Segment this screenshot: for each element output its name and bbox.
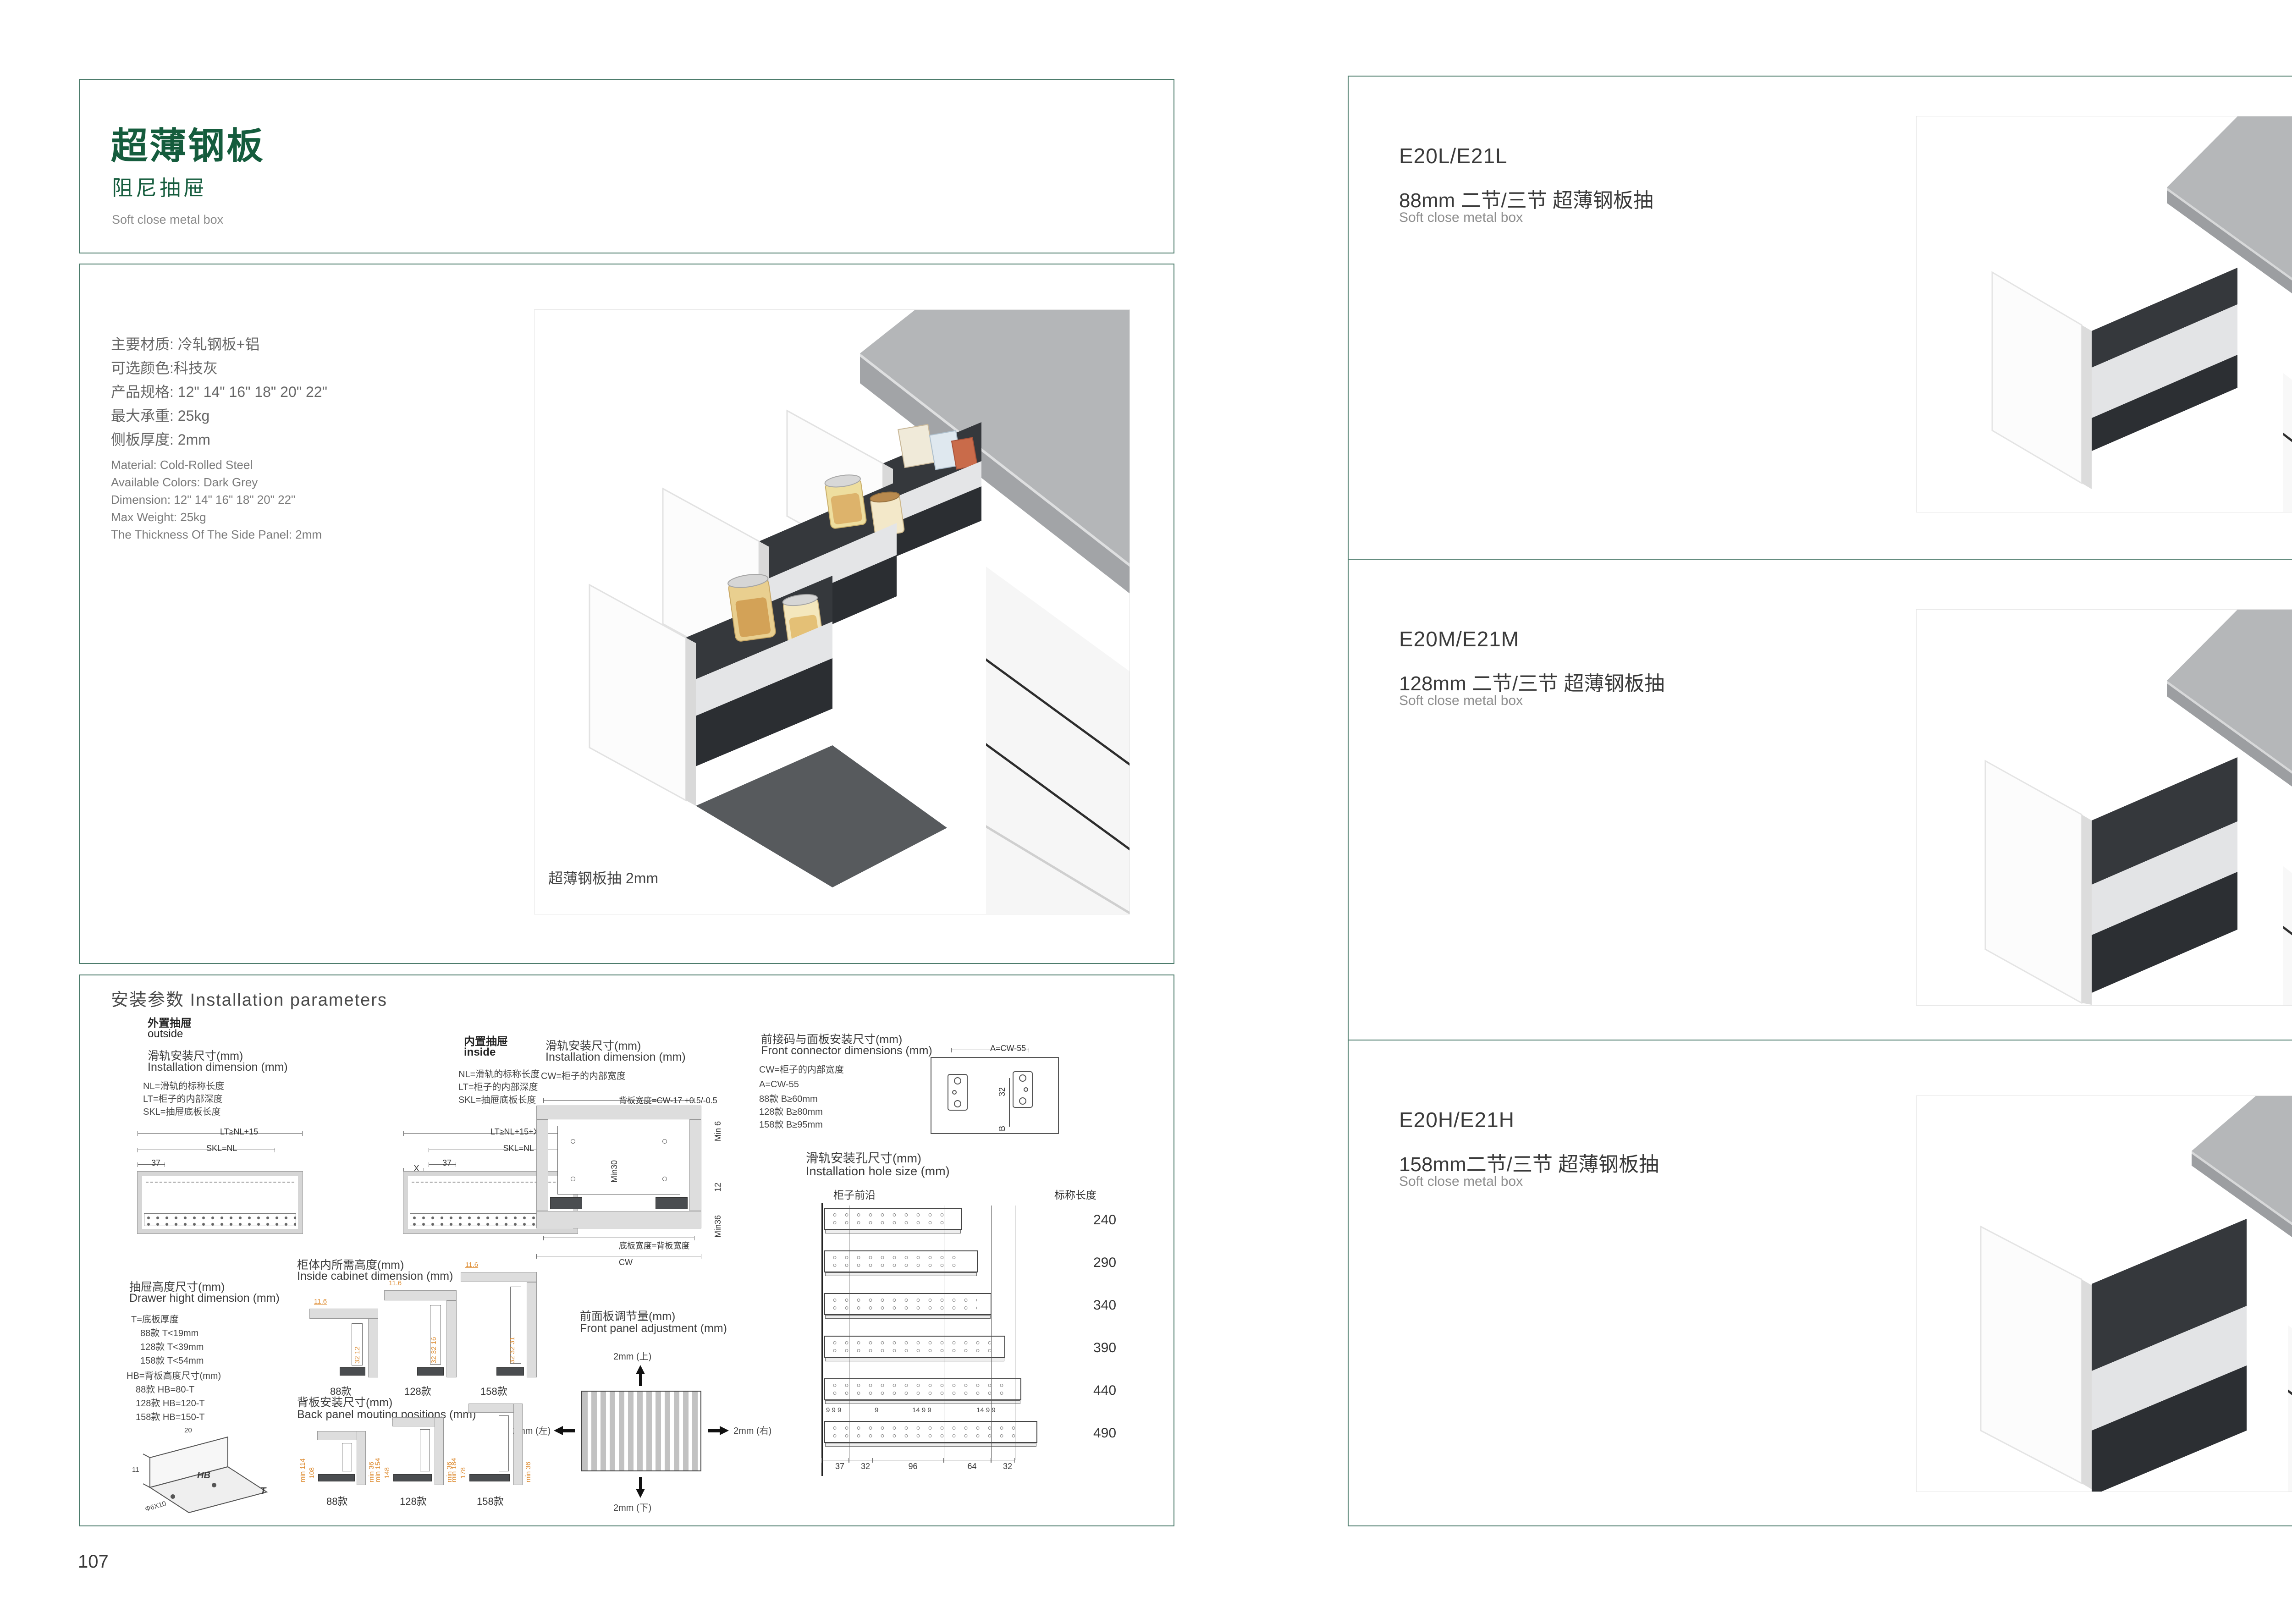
outside-dim-skl: SKL=NL [138,1150,275,1150]
dim-bottom: min 36 [524,1462,532,1482]
micro-dims-4: 14 9 9 [976,1406,996,1414]
install-section-title: 安装参数 Installation parameters [111,985,387,1011]
drawerheight-title-en: Drawer hight dimension (mm) [129,1292,280,1305]
spec-line: 产品规格: 12" 14" 16" 18" 20" 22" [111,380,327,404]
rail-block [417,1367,444,1376]
insidecab-title-en: Inside cabinet dimension (mm) [297,1270,453,1283]
right-plank [527,1282,537,1377]
right-plank [513,1404,523,1485]
page-subtitle-en: Soft close metal box [112,213,223,227]
product-name-cn-2: 128mm 二节/三节 超薄钢板抽 [1399,667,1664,696]
arrow-up-head [636,1365,645,1374]
hole-guide [991,1206,992,1460]
product-code-3: E20H/E21H [1399,1107,1515,1132]
back-panel-profile [342,1443,352,1471]
outside-title-en: Installation dimension (mm) [148,1061,288,1074]
micro-dims-1: 9 9 9 [826,1406,841,1414]
inside-legend-3: SKL=抽屉底板长度 [458,1094,536,1107]
outside-legend-2: LT=柜子的内部深度 [143,1093,223,1106]
length-390: 390 [1093,1340,1116,1356]
insidecab-158: 11.6 32 32 31 [461,1272,537,1377]
drawerheight-t-0: T=底板厚度 [131,1313,179,1326]
drawerheight-t-2: 128款 T<39mm [140,1341,204,1354]
back-panel-profile [499,1415,509,1471]
connector-dim-b: B [997,1126,1007,1131]
hole-guide [849,1206,849,1460]
dim-inner: 108 [308,1467,316,1479]
length-290: 290 [1093,1255,1116,1271]
backpanel-88: min 114 108 min 36 [311,1431,366,1485]
drawer-render-158 [1917,1096,2292,1492]
connector-dim-a: A=CW-55 [951,1050,1029,1050]
railwidth-dim-min36: Min36 [713,1215,723,1238]
rail-block [340,1367,365,1376]
dim-outer: min 114 [299,1459,307,1482]
cabinet-front-line [821,1203,823,1476]
right-plank [435,1417,444,1485]
rail-block [496,1367,524,1376]
pitch-96: 96 [873,1460,944,1460]
connector-diagram [931,1057,1059,1134]
pitch-37: 37 [821,1460,849,1460]
frontadjust-down-label: 2mm (下) [613,1502,651,1514]
right-plank [446,1300,457,1377]
rail-490 [824,1421,1037,1443]
backpanel-title-cn: 背板安装尺寸(mm) [297,1393,392,1410]
drawerheight-t-1: 88款 T<19mm [140,1327,198,1340]
right-plank [368,1319,378,1377]
right-divider-2 [1348,1040,2292,1040]
right-plank [357,1431,366,1485]
rail-bracket-right [656,1197,688,1209]
inside-dim-x: X [403,1170,424,1170]
top-plank [384,1290,457,1300]
railwidth-dim-12: 12 [713,1183,723,1192]
spec-list-en: Material: Cold-Rolled Steel Available Co… [111,456,322,543]
outside-legend-3: SKL=抽屉底板长度 [143,1106,220,1118]
frontadjust-title-cn: 前面板调节量(mm) [580,1307,675,1324]
drawerheight-hb-1: 88款 HB=80-T [136,1383,194,1396]
spec-line-en: Available Colors: Dark Grey [111,473,322,491]
bracket-plates [931,1058,1058,1133]
variant-name: 128款 [404,1383,431,1398]
dim-outer: min 154 [374,1458,382,1482]
arrow-up-shaft [639,1374,642,1386]
rail-assembly [469,1474,510,1481]
side-dims: 32 32 31 [508,1337,516,1364]
railwidth-dim-cw: CW [536,1256,701,1256]
left-plank [536,1119,548,1211]
top-plank [536,1106,701,1119]
drawerheight-iso-diagram: 20 11 Φ6X10 HB T [129,1426,276,1517]
slide-rail [144,1213,296,1226]
product-image-2 [1916,609,2292,1006]
variant-name: 88款 [326,1493,347,1508]
inside-legend-2: LT=柜子的内部深度 [458,1081,538,1094]
spec-line-en: Material: Cold-Rolled Steel [111,456,322,473]
holesize-front-edge: 柜子前沿 [833,1186,876,1202]
drawer-render-88 [1917,116,2292,512]
arrow-left-shaft [563,1429,575,1432]
screw-hole [571,1139,575,1144]
spec-list-cn: 主要材质: 冷轧钢板+铝 可选颜色:科技灰 产品规格: 12" 14" 16" … [111,332,327,451]
catalog-spread: { "page_left": { "page_number": "107", "… [0,0,2292,1624]
railwidth-dim-min30: Min30 [610,1160,619,1183]
pitch-64: 64 [944,1460,991,1460]
outside-dim-lt: LT≥NL+15 [138,1133,303,1134]
iso-dim-t: T [260,1486,266,1497]
product-photo-frame: 超薄钢板抽 2mm [534,309,1130,914]
dim-outer: min 184 [450,1458,458,1482]
spec-line: 侧板厚度: 2mm [111,428,327,451]
outside-tag-en: outside [148,1028,183,1040]
arrow-left-head [554,1426,563,1435]
product-code-2: E20M/E21M [1399,627,1519,651]
rail-240 [824,1208,962,1230]
side-dims: 32 32 16 [430,1337,438,1364]
rail-440 [824,1378,1021,1400]
drawerheight-t-3: 158款 T<54mm [140,1354,204,1367]
screw-hole [571,1177,575,1181]
arrow-right-shaft [708,1429,720,1432]
length-240: 240 [1093,1212,1116,1228]
drawerheight-hb-0: HB=背板高度尺寸(mm) [127,1370,221,1382]
spec-line: 主要材质: 冷轧钢板+铝 [111,332,327,356]
dim-11-6: 11.6 [389,1279,402,1287]
product-name-cn-3: 158mm二节/三节 超薄钢板抽 [1399,1148,1659,1177]
front-panel-hatch [581,1391,701,1471]
drawer-dash-line [146,1182,294,1183]
outside-cabinet-diagram [138,1172,303,1233]
drawer-render-128 [1917,610,2292,1006]
page-title: 超薄钢板 [111,116,265,170]
rail-assembly [318,1474,355,1481]
dim-11-6: 11.6 [465,1261,478,1269]
left-header-box: 超薄钢板 阻尼抽屉 Soft close metal box [79,79,1174,253]
outside-dim-37: 37 [138,1164,165,1165]
inside-dim-37: 37 [429,1164,456,1165]
page-number-left: 107 [78,1552,109,1572]
railwidth-dim-top: 背板宽度=CW-17 +0.5/-0.5 [543,1100,694,1101]
variant-name: 128款 [400,1493,427,1508]
dim-11-6: 11.6 [314,1298,327,1305]
dim-inner: 178 [459,1467,467,1479]
spec-line: 可选颜色:科技灰 [111,356,327,380]
backpanel-158: min 184 178 min 36 [462,1404,523,1485]
railwidth-title-en: Installation dimension (mm) [545,1051,686,1064]
drawerheight-hb-2: 128款 HB=120-T [136,1397,205,1410]
connector-legend-4: 128款 B≥80mm [759,1106,823,1118]
right-plank [689,1119,701,1211]
railwidth-legend: CW=柜子的内部宽度 [541,1070,626,1083]
pitch-32: 32 [849,1460,873,1460]
pitch-32b: 32 [991,1460,1015,1460]
rail-assembly [393,1474,432,1481]
rail-bracket-left [550,1197,582,1209]
rail-290 [824,1250,978,1272]
spec-line-en: The Thickness Of The Side Panel: 2mm [111,526,322,543]
drawerheight-hb-3: 158款 HB=150-T [136,1411,205,1424]
iso-dim-20: 20 [184,1426,192,1434]
insidecab-88: 11.6 32 12 [309,1309,378,1377]
connector-legend-2: A=CW-55 [759,1078,799,1091]
right-divider-1 [1348,559,2292,560]
length-440: 440 [1093,1383,1116,1398]
hole-guide [944,1206,944,1460]
back-panel-profile [420,1429,430,1471]
backpanel-128: min 154 148 min 36 [386,1417,444,1485]
drawer-photo-illustration [534,310,1130,914]
dim-inner: 148 [383,1467,391,1479]
spec-line-en: Dimension: 12" 14" 16" 18" 20" 22" [111,491,322,508]
top-plank [309,1309,378,1319]
page-subtitle: 阻尼抽屉 [112,171,207,202]
product-name-cn-1: 88mm 二节/三节 超薄钢板抽 [1399,184,1653,213]
product-name-en-3: Soft close metal box [1399,1174,1523,1189]
side-dims: 32 12 [353,1346,361,1364]
holesize-title-cn: 滑轨安装孔尺寸(mm) [806,1148,921,1166]
railwidth-dim-min6: Min 6 [713,1121,723,1141]
connector-legend-1: CW=柜子的内部宽度 [759,1063,844,1076]
connector-dim-32: 32 [997,1087,1007,1096]
iso-dim-hb: HB [197,1470,210,1481]
product-code-1: E20L/E21L [1399,143,1508,168]
hole-guide [873,1206,873,1460]
product-name-en-2: Soft close metal box [1399,693,1523,709]
holesize-title-en: Installation hole size (mm) [806,1164,950,1178]
micro-dims-3: 14 9 9 [912,1406,931,1414]
holesize-length-header: 标称长度 [1054,1186,1096,1202]
outside-legend-1: NL=滑轨的标称长度 [143,1080,224,1093]
inside-tag-en: inside [464,1046,496,1059]
spec-line: 最大承重: 25kg [111,404,327,428]
frontadjust-right-label: 2mm (右) [733,1425,771,1437]
arrow-down-head [636,1489,645,1498]
bottom-plank [536,1211,701,1228]
length-340: 340 [1093,1298,1116,1313]
connector-legend-5: 158款 B≥95mm [759,1118,823,1131]
spec-line-en: Max Weight: 25kg [111,508,322,526]
rail-390 [824,1336,1005,1358]
product-name-en-1: Soft close metal box [1399,210,1523,226]
length-490: 490 [1093,1426,1116,1441]
railwidth-dim-bottom: 底板宽度=背板宽度 [543,1238,694,1238]
screw-hole [662,1177,667,1181]
connector-legend-3: 88款 B≥60mm [759,1093,818,1106]
micro-dims-2: 9 [875,1406,878,1414]
iso-dim-11: 11 [132,1466,139,1474]
variant-name: 158款 [477,1493,504,1508]
frontadjust-up-label: 2mm (上) [613,1350,651,1363]
connector-title-en: Front connector dimensions (mm) [761,1044,932,1057]
insidecab-128: 11.6 32 32 16 [384,1290,457,1377]
variant-name: 158款 [480,1383,507,1398]
inside-legend-1: NL=滑轨的标称长度 [458,1068,540,1081]
hole-guide [1015,1206,1015,1460]
product-image-1 [1916,116,2292,512]
arrow-right-head [720,1426,729,1435]
top-plank [461,1272,537,1282]
frontadjust-title-en: Front panel adjustment (mm) [580,1322,727,1335]
photo-caption: 超薄钢板抽 2mm [548,867,658,888]
arrow-down-shaft [639,1477,642,1489]
product-image-3 [1916,1096,2292,1492]
screw-hole [662,1139,667,1144]
